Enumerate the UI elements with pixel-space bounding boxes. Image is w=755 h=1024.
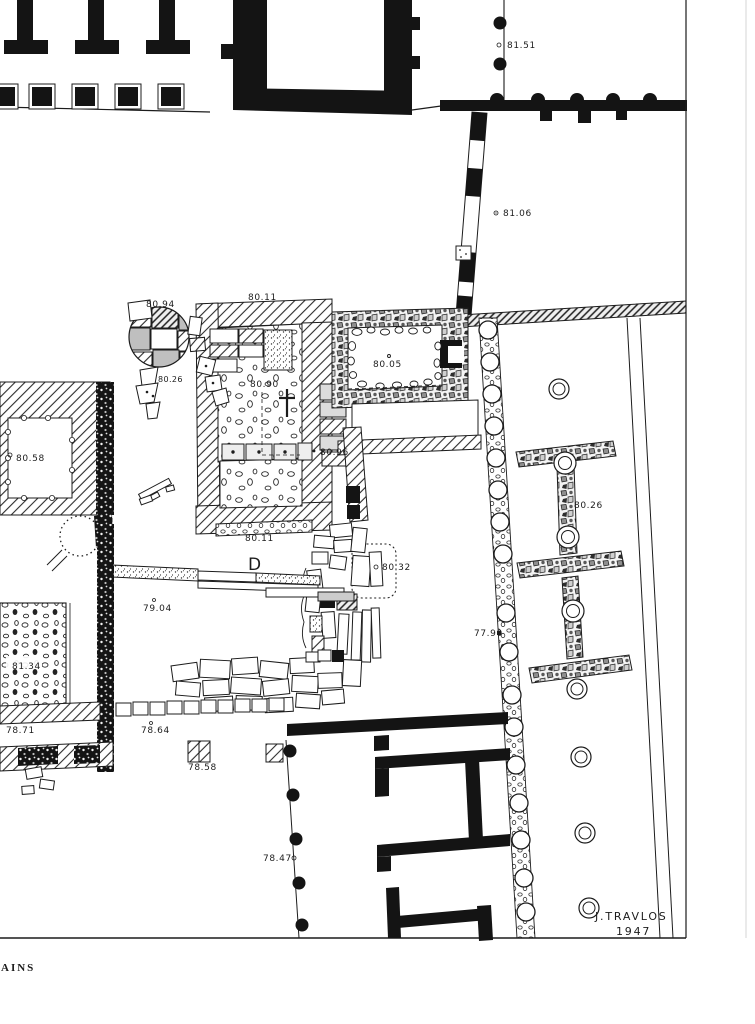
southwest-wall-bands bbox=[0, 702, 113, 771]
elevation-label-80-05: 80.05 bbox=[373, 360, 402, 370]
stoa-colonnade bbox=[4, 0, 190, 54]
elevation-label-80-96: 80.96 bbox=[320, 448, 349, 458]
elevation-label-78-47: 78.47 bbox=[263, 854, 292, 864]
survey-year: 1947 bbox=[616, 925, 651, 938]
north-wall-81-51 bbox=[440, 0, 687, 123]
elevation-label-79-04: 79.04 bbox=[143, 604, 172, 614]
elevation-label-80-11-top: 80.11 bbox=[248, 293, 277, 303]
elevation-label-78-58: 78.58 bbox=[188, 763, 217, 773]
elevation-label-80-58: 80.58 bbox=[16, 454, 45, 464]
surveyor-name: J.TRAVLOS bbox=[594, 910, 668, 923]
elevation-label-80-32: 80.32 bbox=[382, 563, 411, 573]
courtyard-stones bbox=[136, 383, 175, 505]
plan-drawing: 81.51 81.06 80.94 80.11 80.05 80.58 80.9… bbox=[0, 0, 755, 1024]
east-foundations bbox=[516, 441, 632, 683]
elevation-label-78-71: 78.71 bbox=[6, 726, 35, 736]
elevation-label-81-34: 81.34 bbox=[12, 662, 41, 672]
elevation-label-80-90: 80.90 bbox=[250, 380, 279, 390]
room-80-05 bbox=[332, 308, 481, 522]
elevation-label-77-90: 77.90 bbox=[474, 629, 503, 639]
round-monument bbox=[128, 300, 206, 386]
elevation-label-80-11-bottom: 80.11 bbox=[245, 534, 274, 544]
dotted-boundary-line bbox=[266, 740, 309, 938]
room-81-34 bbox=[0, 603, 70, 708]
stoa-back-walls bbox=[221, 0, 420, 115]
later-wall-strip bbox=[456, 112, 498, 319]
caption-fragment: AINS bbox=[1, 962, 35, 974]
elevation-label-81-06: 81.06 bbox=[503, 209, 532, 219]
south-building-walls bbox=[287, 712, 510, 941]
room-80-11-interior bbox=[220, 459, 302, 508]
surveyor-signature: J.TRAVLOS 1947 bbox=[594, 910, 668, 938]
area-label-d: D bbox=[248, 555, 262, 575]
elevation-label-80-26-left: 80.26 bbox=[158, 375, 183, 384]
elevation-label-80-26-right: 80.26 bbox=[574, 501, 603, 511]
elevation-label-80-94: 80.94 bbox=[146, 300, 175, 310]
central-room-complex bbox=[196, 299, 346, 536]
elevation-label-81-51: 81.51 bbox=[507, 41, 536, 51]
elevation-label-78-64: 78.64 bbox=[141, 726, 170, 736]
excavation-plan-sheet: 81.51 81.06 80.94 80.11 80.05 80.58 80.9… bbox=[0, 0, 755, 1024]
